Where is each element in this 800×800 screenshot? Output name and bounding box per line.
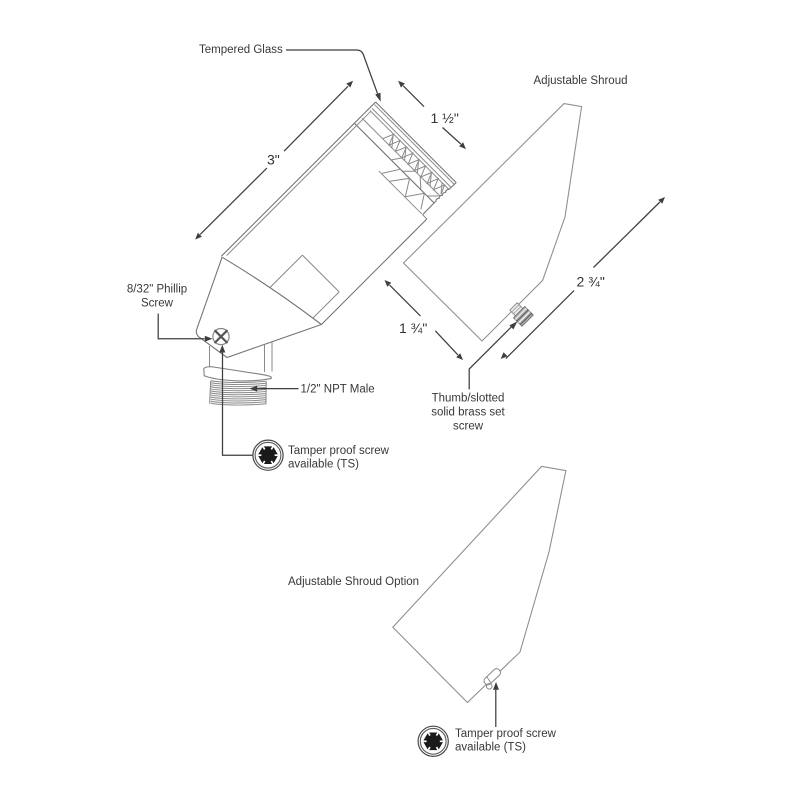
svg-text:screw: screw (453, 421, 484, 433)
svg-text:1 ½": 1 ½" (431, 110, 459, 126)
svg-text:Thumb/slotted: Thumb/slotted (432, 393, 505, 405)
svg-text:solid brass set: solid brass set (431, 407, 505, 419)
svg-text:3": 3" (267, 152, 280, 168)
svg-text:available (TS): available (TS) (288, 458, 359, 470)
svg-text:Tamper proof screw: Tamper proof screw (455, 728, 557, 740)
svg-text:available (TS): available (TS) (455, 742, 526, 754)
svg-text:8/32" Phillip: 8/32" Phillip (127, 283, 187, 295)
svg-text:Adjustable Shroud: Adjustable Shroud (534, 75, 628, 87)
svg-text:Tamper proof screw: Tamper proof screw (288, 445, 390, 457)
svg-text:Screw: Screw (141, 297, 174, 309)
svg-text:Adjustable Shroud Option: Adjustable Shroud Option (288, 576, 419, 588)
svg-text:Tempered Glass: Tempered Glass (199, 44, 283, 56)
svg-text:2 ¾": 2 ¾" (577, 274, 605, 290)
svg-text:1 ¾": 1 ¾" (399, 320, 427, 336)
svg-text:1/2" NPT Male: 1/2" NPT Male (301, 384, 375, 396)
